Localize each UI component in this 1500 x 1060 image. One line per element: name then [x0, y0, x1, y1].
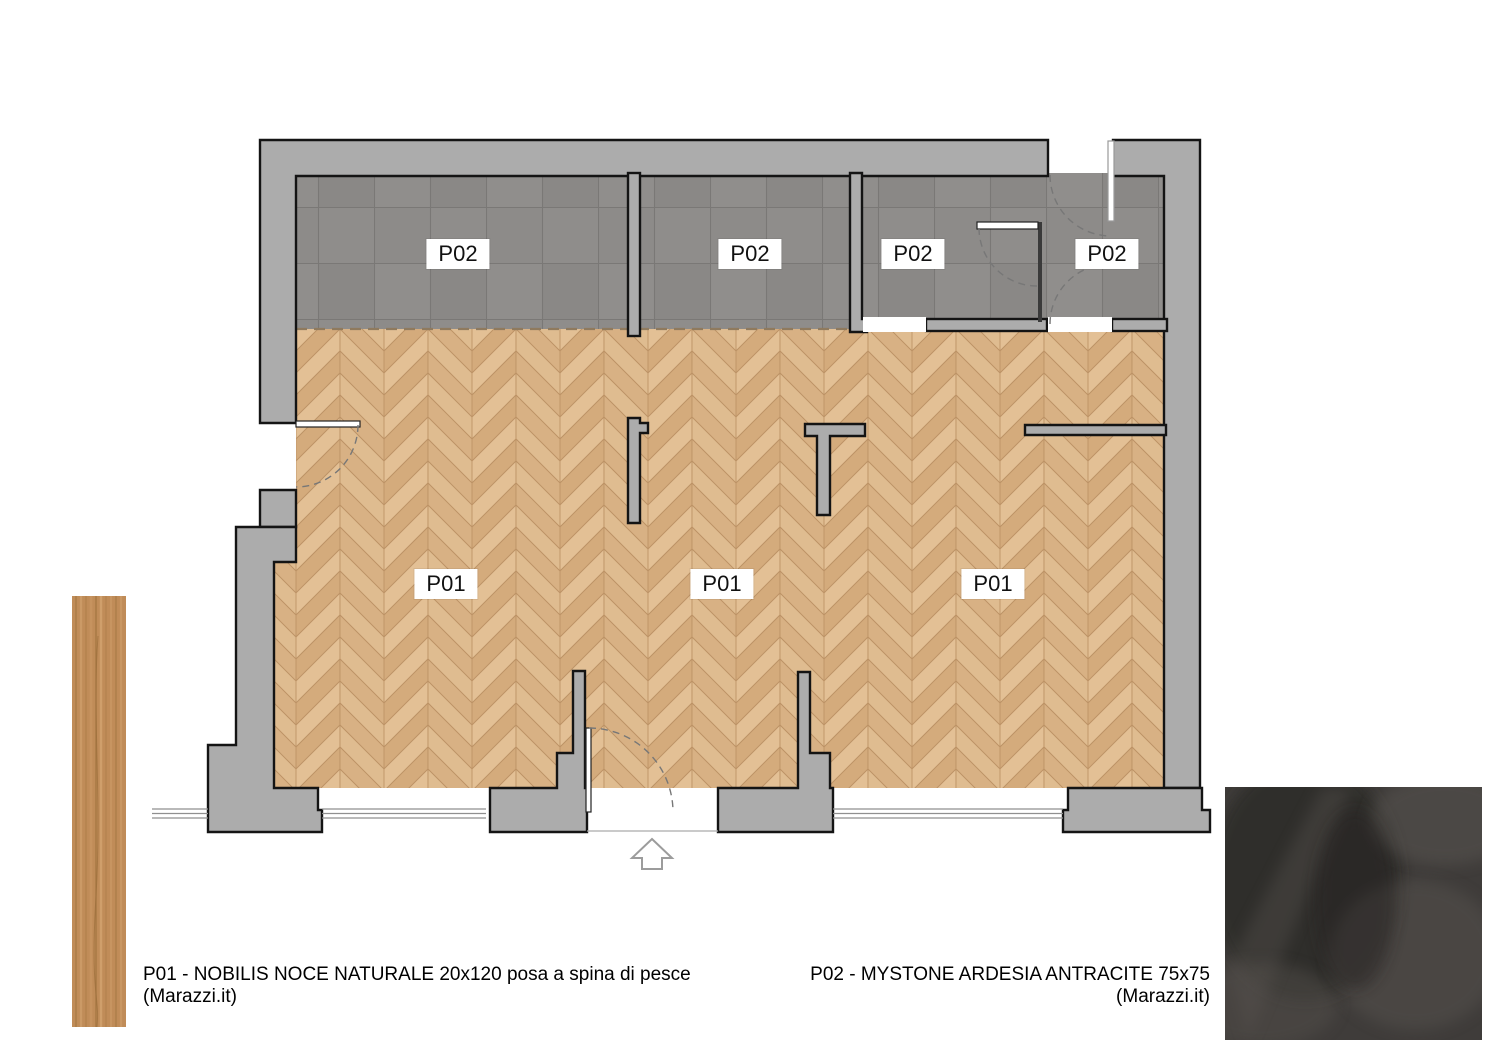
entrance-arrow-icon [632, 839, 672, 869]
room-label-p01-1: P01 [414, 569, 477, 599]
wall-pier-bottom-right [1063, 788, 1210, 832]
door-leaf-entrance [586, 728, 591, 812]
legend-p01-line1: P01 - NOBILIS NOCE NATURALE 20x120 posa … [143, 964, 691, 986]
room-label-p01-2: P01 [690, 569, 753, 599]
partition-room1-room2 [628, 173, 640, 336]
legend-p02-line1: P02 - MYSTONE ARDESIA ANTRACITE 75x75 [760, 964, 1210, 986]
room-label-p02-3: P02 [881, 239, 944, 269]
sample-p01-plank [72, 596, 126, 1027]
partition-room3-hall [1038, 222, 1042, 322]
sample-p02-slate [1187, 760, 1500, 1047]
room-label-p02-1: P02 [426, 239, 489, 269]
wall-room3-bottom [926, 319, 1047, 331]
floor-plan-drawing [0, 0, 1500, 1060]
legend-p01-line2: (Marazzi.it) [143, 986, 691, 1008]
door-leaf-top-entrance [1108, 141, 1114, 221]
legend-p02-caption: P02 - MYSTONE ARDESIA ANTRACITE 75x75 (M… [760, 964, 1210, 1008]
door-leaf-room3 [977, 222, 1038, 229]
room-label-p02-2: P02 [718, 239, 781, 269]
wall-room4-bottom [1112, 319, 1167, 331]
door-leaf-left [296, 421, 360, 427]
room-label-p01-3: P01 [961, 569, 1024, 599]
wall-left-mid [260, 490, 296, 527]
wall-stub-right [1025, 425, 1166, 435]
floor-plan-sheet: P02 P02 P02 P02 P01 P01 P01 P01 - NOBILI… [0, 0, 1500, 1060]
legend-p02-line2: (Marazzi.it) [760, 986, 1210, 1008]
wood-floor [274, 329, 1164, 788]
room-label-p02-4: P02 [1075, 239, 1138, 269]
legend-p01-caption: P01 - NOBILIS NOCE NATURALE 20x120 posa … [143, 964, 691, 1008]
